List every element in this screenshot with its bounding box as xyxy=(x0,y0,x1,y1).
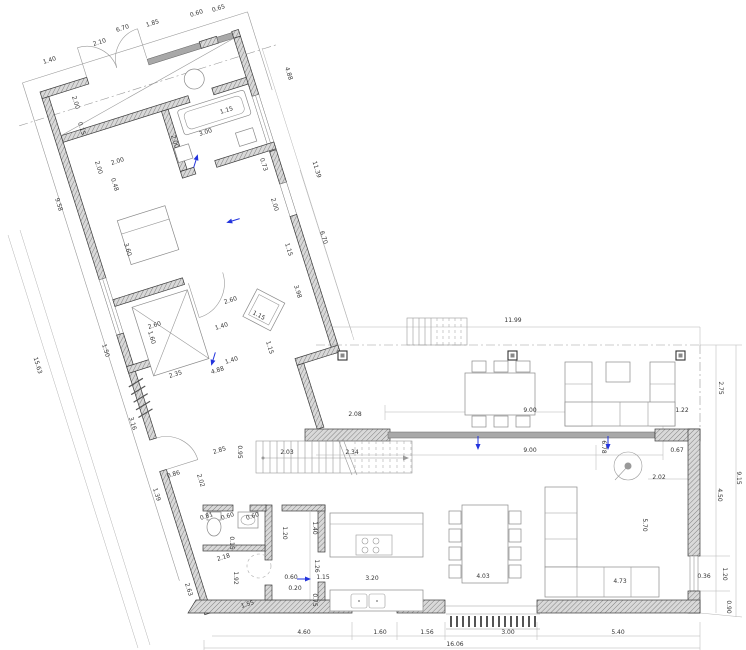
dim-label: 1.15 xyxy=(316,574,330,581)
dimension-rails xyxy=(8,48,742,650)
dim-label: 0.90 xyxy=(725,600,732,614)
dim-label: 1.40 xyxy=(311,521,318,535)
floor-plan-svg: 1.402.106.701.850.600.659.5815.631.503.1… xyxy=(0,0,746,650)
dim-label: 0.60 xyxy=(189,8,204,19)
dim-label: 4.03 xyxy=(476,573,490,580)
dim-label: 16.06 xyxy=(446,641,463,648)
entry-arrow xyxy=(209,352,218,367)
dim-label: 1.20 xyxy=(281,526,288,540)
dim-label: 1.40 xyxy=(42,55,57,66)
entry-arrow xyxy=(226,216,241,225)
dim-label: 3.20 xyxy=(365,575,379,582)
dim-label: 0.48 xyxy=(109,177,120,192)
dim-label: 4.50 xyxy=(716,488,723,502)
dim-label: 3.00 xyxy=(501,629,515,636)
terrace-side-table xyxy=(606,362,630,382)
dim-label: 2.75 xyxy=(717,381,724,395)
dim-label: 1.50 xyxy=(100,343,111,358)
dim-label: 15.63 xyxy=(32,356,44,375)
deck-comb xyxy=(446,614,540,629)
dim-label: 4.88 xyxy=(210,365,225,376)
dim-label: 2.08 xyxy=(348,411,362,418)
dim-label: 0.60 xyxy=(220,511,235,522)
dim-label: 0.75 xyxy=(311,593,318,607)
dim-label: 2.02 xyxy=(652,474,666,481)
kitchen-counter xyxy=(330,590,423,611)
dim-label: 1.60 xyxy=(373,629,387,636)
dim-label: 1.20 xyxy=(721,567,728,581)
dim-label: 0.20 xyxy=(288,585,302,592)
dim-label: 4.88 xyxy=(283,66,294,81)
dim-label: 2.00 xyxy=(93,160,104,175)
dim-label: 2.10 xyxy=(92,37,107,48)
dim-label: 2.00 xyxy=(70,95,81,110)
dim-label: 0.95 xyxy=(236,445,243,459)
dining-table xyxy=(449,505,521,583)
dim-label: 9.15 xyxy=(735,471,742,485)
dim-label: 2.00 xyxy=(110,156,125,167)
stair-direction-arrow xyxy=(403,456,409,461)
dim-label: 9.00 xyxy=(523,407,537,414)
dim-label: 6.70 xyxy=(115,23,130,34)
dim-label: 11.39 xyxy=(311,160,323,179)
dim-label: 6.78 xyxy=(600,440,607,454)
dim-label: 2.02 xyxy=(195,473,206,488)
dim-label: 1.92 xyxy=(232,571,239,585)
wc xyxy=(235,128,256,147)
wc-bowl xyxy=(207,518,221,536)
dim-label: 3.98 xyxy=(292,284,303,299)
dim-label: 1.56 xyxy=(420,629,434,636)
dim-label: 1.22 xyxy=(675,407,689,414)
dim-label: 0.73 xyxy=(258,157,269,172)
dim-label: 1.15 xyxy=(264,340,275,355)
dim-label: 0.67 xyxy=(670,447,684,454)
dim-label: 0.15 xyxy=(228,536,235,550)
dim-label: 2.00 xyxy=(269,197,280,212)
dim-label: 0.60 xyxy=(284,574,298,581)
fireplace xyxy=(614,452,642,480)
dim-label: 9.00 xyxy=(523,447,537,454)
dim-label: 2.34 xyxy=(345,449,359,456)
dim-label: 4.73 xyxy=(613,578,627,585)
column-circle xyxy=(182,66,207,91)
entry-arrow xyxy=(191,154,200,169)
dim-label: 0.65 xyxy=(211,3,226,14)
dim-label: 2.03 xyxy=(280,449,294,456)
dim-label: 6.70 xyxy=(318,230,329,245)
dim-label: 5.70 xyxy=(641,518,648,532)
dim-label: 4.60 xyxy=(297,629,311,636)
kitchen-island xyxy=(330,513,423,557)
terrace-sofa-set xyxy=(565,362,675,426)
dim-label: 2.63 xyxy=(183,582,194,597)
living-room-sofa xyxy=(545,487,659,597)
dim-label: 1.40 xyxy=(224,355,239,366)
dim-label: 1.40 xyxy=(214,321,229,332)
dim-label: 2.60 xyxy=(223,295,238,306)
terrace xyxy=(316,318,700,428)
dim-label: 11.99 xyxy=(504,317,521,324)
dim-label: 2.85 xyxy=(212,445,227,456)
dim-label: 1.26 xyxy=(313,559,320,573)
floor-plan-page: 1.402.106.701.850.600.659.5815.631.503.1… xyxy=(0,0,746,650)
dim-label: 0.86 xyxy=(166,469,181,480)
dim-label: 1.15 xyxy=(283,242,294,257)
terrace-steps xyxy=(407,318,467,345)
terrace-dining-table xyxy=(465,361,535,427)
dim-label: 0.36 xyxy=(697,573,711,580)
dim-label: 5.40 xyxy=(611,629,625,636)
armchair-diamond xyxy=(236,282,291,337)
dim-label: 1.85 xyxy=(145,18,160,29)
entry-arrow xyxy=(297,577,311,582)
dim-label: 9.58 xyxy=(53,197,64,212)
dim-label: 1.39 xyxy=(151,487,162,502)
dim-label: 2.18 xyxy=(216,552,231,563)
staircase xyxy=(256,439,412,475)
terrace-posts xyxy=(338,351,685,360)
dim-label: 3.16 xyxy=(127,416,138,431)
